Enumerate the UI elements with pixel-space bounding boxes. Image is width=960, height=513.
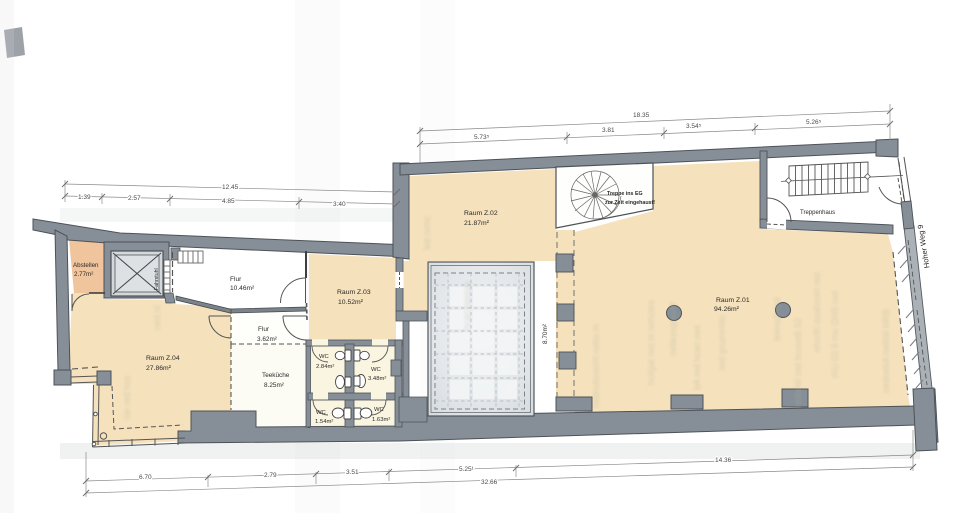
svg-text:2.77m²: 2.77m²: [74, 271, 93, 278]
svg-text:hcan nennig: hcan nennig: [462, 281, 472, 330]
svg-text:32.66: 32.66: [481, 479, 498, 486]
svg-text:3.81: 3.81: [602, 127, 615, 134]
svg-text:Treppe ins EG: Treppe ins EG: [607, 191, 643, 197]
svg-text:rhU 03.9 mu GHS red: rhU 03.9 mu GHS red: [830, 291, 840, 378]
svg-text:hcilgat red nl nehctes: hcilgat red nl nehctes: [646, 299, 656, 385]
svg-text:ned nl: ned nl: [152, 305, 162, 330]
svg-text:ehcriK-suahcoH red: ehcriK-suahcoH red: [812, 272, 822, 352]
svg-text:6.70: 6.70: [139, 474, 152, 481]
svg-text:21.87m²: 21.87m²: [464, 220, 490, 227]
svg-text:5.73⁵: 5.73⁵: [474, 134, 490, 141]
svg-text:nednebA nelliW HRB: nednebA nelliW HRB: [881, 309, 891, 393]
svg-text:2.79: 2.79: [264, 472, 277, 479]
svg-text:94.26m²: 94.26m²: [714, 306, 740, 313]
svg-text:8.25m²: 8.25m²: [264, 382, 284, 389]
svg-text:netiezsgnunff: netiezsgnunff: [668, 302, 678, 356]
svg-text:Teeküche: Teeküche: [262, 372, 290, 379]
svg-text:1.39: 1.39: [78, 194, 91, 201]
svg-text:3.48m²: 3.48m²: [368, 376, 386, 382]
svg-text:WC: WC: [316, 410, 327, 416]
svg-text:Flur: Flur: [230, 276, 242, 283]
svg-text:bA red hcan nes: bA red hcan nes: [692, 324, 702, 390]
svg-text:WC: WC: [371, 367, 382, 373]
svg-text:12.45: 12.45: [222, 184, 239, 191]
svg-text:nellieW red hcuseB 52: nellieW red hcuseB 52: [793, 318, 803, 408]
svg-text:5.26⁵: 5.26⁵: [806, 119, 822, 126]
svg-text:Raum Z.04: Raum Z.04: [146, 355, 180, 362]
svg-text:zur Zeit eingehaust!: zur Zeit eingehaust!: [605, 200, 655, 206]
svg-text:8.70m²: 8.70m²: [542, 324, 549, 344]
svg-text:WC: WC: [374, 407, 385, 413]
svg-text:27.86m²: 27.86m²: [146, 365, 172, 372]
svg-text:18.35: 18.35: [633, 112, 650, 119]
svg-text:3.54⁵: 3.54⁵: [686, 123, 702, 130]
svg-text:Flur: Flur: [258, 326, 270, 333]
svg-text:Raum Z.02: Raum Z.02: [464, 210, 498, 217]
svg-text:led nehc: led nehc: [422, 215, 432, 250]
svg-text:1.54m²: 1.54m²: [315, 419, 333, 425]
svg-text:red gnummits: red gnummits: [717, 315, 727, 370]
svg-text:WC: WC: [319, 354, 330, 360]
svg-text:2.57: 2.57: [128, 195, 141, 202]
svg-text:3.40: 3.40: [333, 201, 346, 208]
svg-text:1.63m²: 1.63m²: [372, 417, 390, 423]
svg-text:Abstellen: Abstellen: [73, 262, 99, 269]
svg-text:2.84m²: 2.84m²: [316, 364, 334, 370]
svg-text:Fahrstuhl: Fahrstuhl: [154, 268, 160, 290]
svg-text:3.62m²: 3.62m²: [257, 336, 277, 343]
svg-text:Raum Z.03: Raum Z.03: [337, 289, 371, 296]
svg-text:3.51: 3.51: [346, 469, 359, 476]
svg-text:10.46m²: 10.46m²: [230, 285, 255, 292]
svg-text:4.85: 4.85: [222, 198, 235, 205]
svg-text:Raum Z.01: Raum Z.01: [716, 297, 750, 304]
svg-text:14.36: 14.36: [715, 457, 732, 464]
svg-text:teknaS red: teknaS red: [772, 297, 782, 341]
svg-text:10.52m²: 10.52m²: [338, 299, 364, 306]
svg-text:5.25¹: 5.25¹: [459, 466, 475, 473]
svg-text:nednutsnerH nebo m: nednutsnerH nebo m: [591, 324, 601, 408]
svg-text:Treppenhaus: Treppenhaus: [800, 210, 835, 216]
svg-text:nie red hcs: nie red hcs: [122, 375, 132, 420]
